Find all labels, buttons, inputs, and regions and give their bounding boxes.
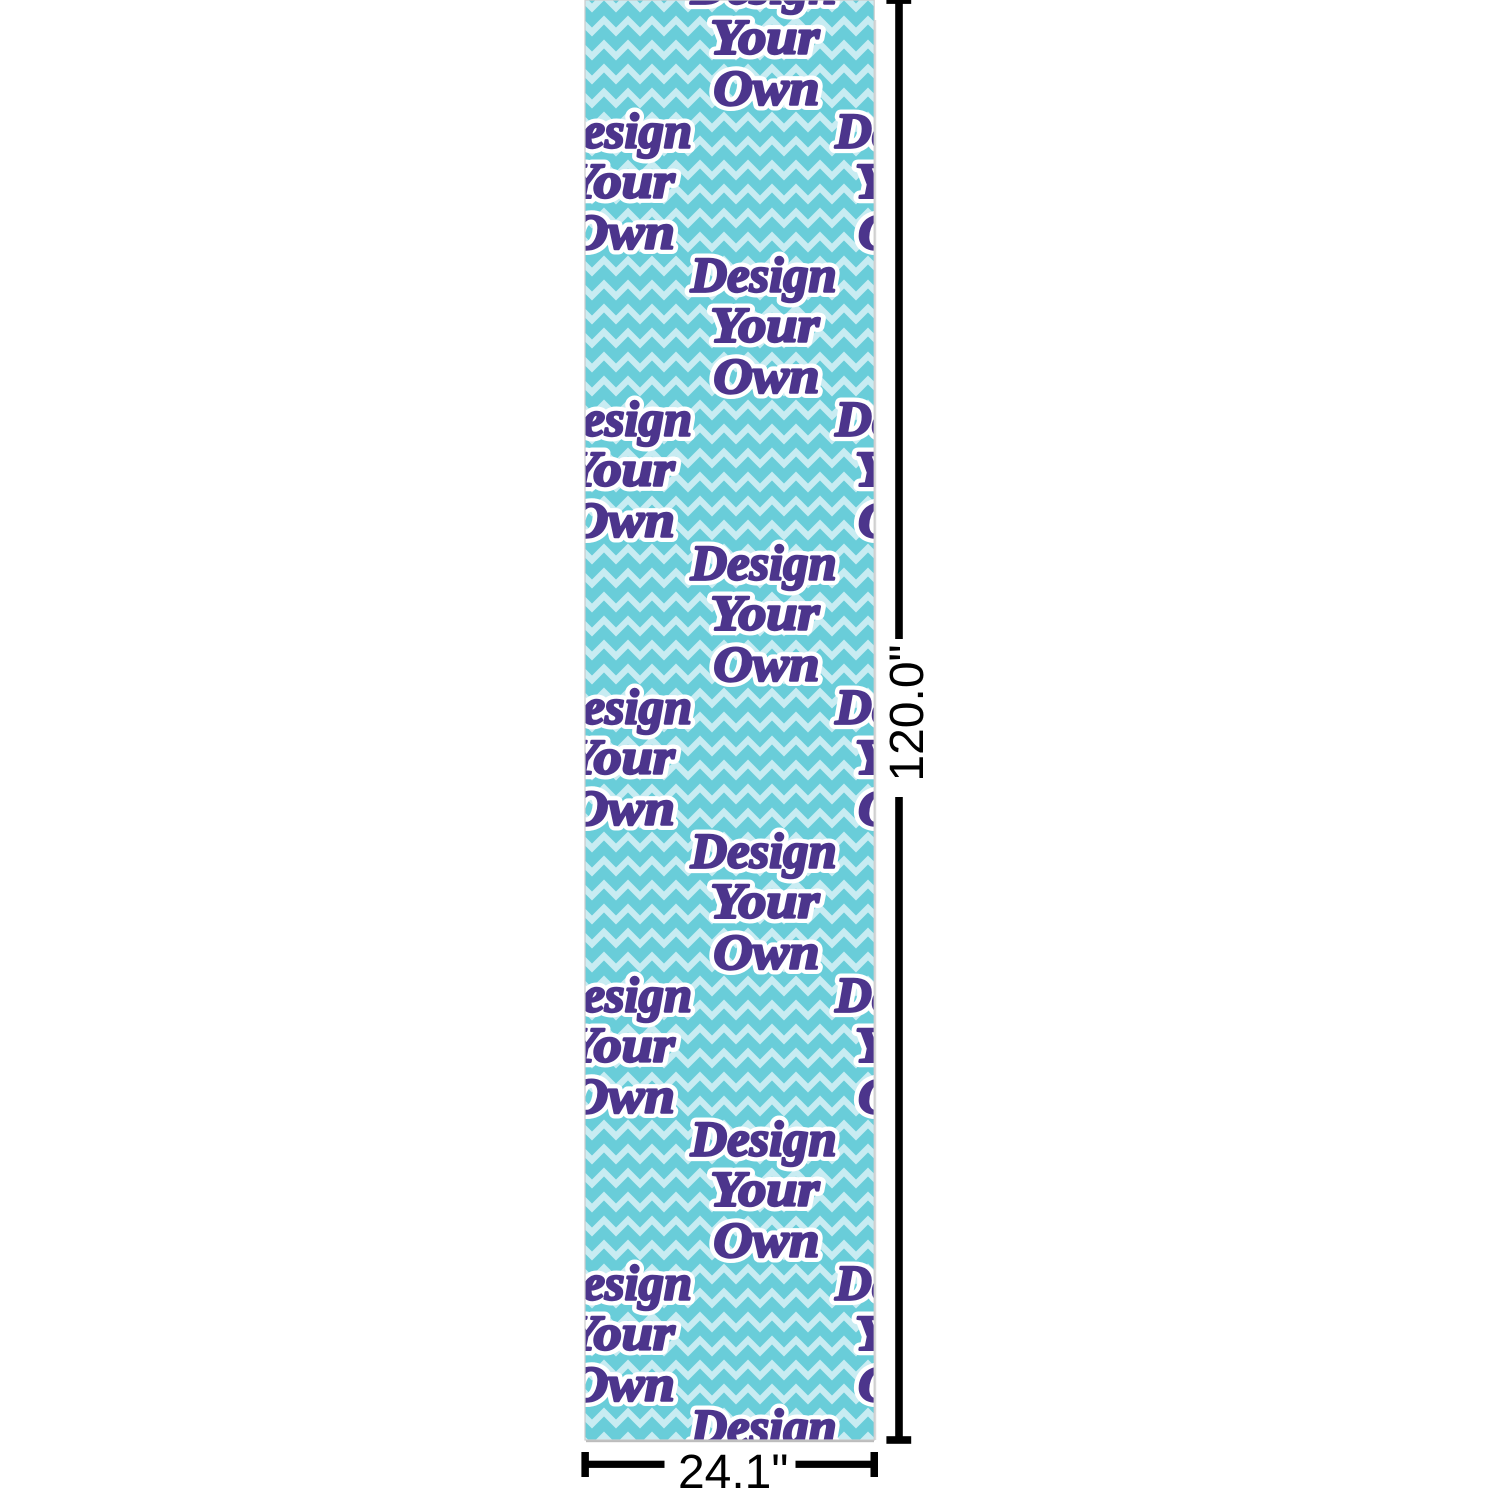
svg-text:120.0": 120.0"	[881, 644, 934, 781]
svg-text:24.1": 24.1"	[678, 1446, 788, 1499]
